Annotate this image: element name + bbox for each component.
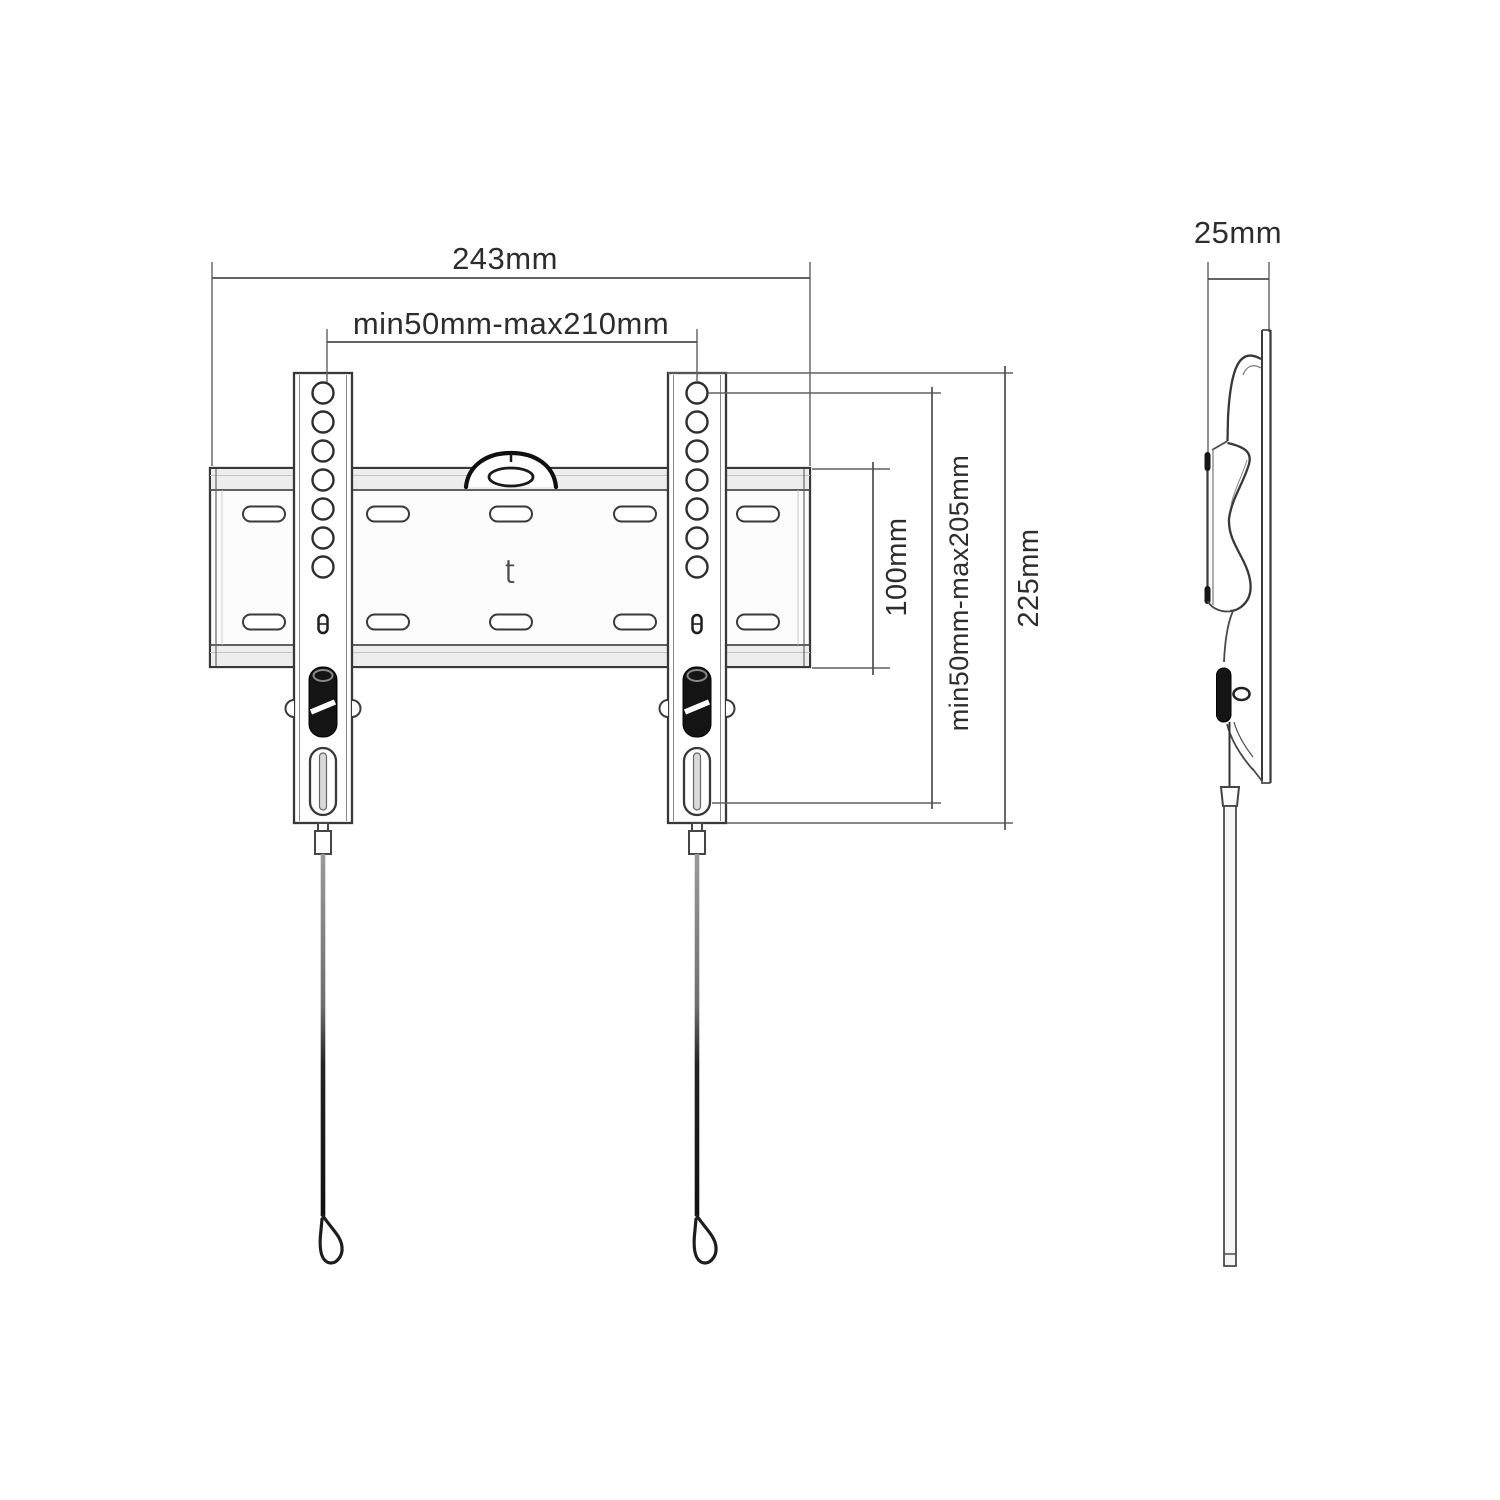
dimension-label-vesa-height-range: min50mm-max205mm (944, 455, 974, 732)
side-screw-hole (1234, 688, 1250, 700)
left-rail (286, 373, 361, 1263)
slot (614, 507, 656, 522)
side-view: 25mm (1194, 215, 1282, 1266)
slot (367, 615, 409, 630)
handle-bubble (489, 468, 533, 486)
front-view: ʈ 243mm min50mm-max210mm (210, 241, 1045, 1263)
side-lower-hook (1227, 722, 1253, 770)
slot (490, 507, 532, 522)
right-rail (660, 373, 735, 1263)
tv-mount-technical-drawing: ʈ 243mm min50mm-max210mm (0, 0, 1500, 1500)
dimension-plate-height: 100mm (812, 462, 913, 675)
dimension-label-vesa-width-range: min50mm-max210mm (353, 306, 669, 341)
dimension-label-bracket-height: 225mm (1013, 528, 1045, 627)
dimension-label-total-width: 243mm (452, 241, 558, 276)
level-handle (466, 453, 556, 487)
slot (490, 615, 532, 630)
side-wall-plate (1252, 330, 1271, 783)
dimension-label-depth: 25mm (1194, 215, 1282, 250)
dimension-depth: 25mm (1194, 215, 1282, 453)
slot (367, 507, 409, 522)
side-lock-lever (1217, 668, 1232, 722)
slot (243, 507, 285, 522)
side-bracket-profile (1208, 356, 1262, 662)
slot (737, 615, 779, 630)
diagram-canvas: ʈ 243mm min50mm-max210mm (0, 0, 1500, 1500)
dimension-vesa-width-range: min50mm-max210mm (327, 306, 697, 382)
slot (243, 615, 285, 630)
side-pull-cord (1221, 722, 1239, 1266)
dimension-label-plate-height: 100mm (881, 517, 913, 616)
slot (737, 507, 779, 522)
slot (614, 615, 656, 630)
brand-logo-glyph: ʈ (505, 555, 515, 584)
